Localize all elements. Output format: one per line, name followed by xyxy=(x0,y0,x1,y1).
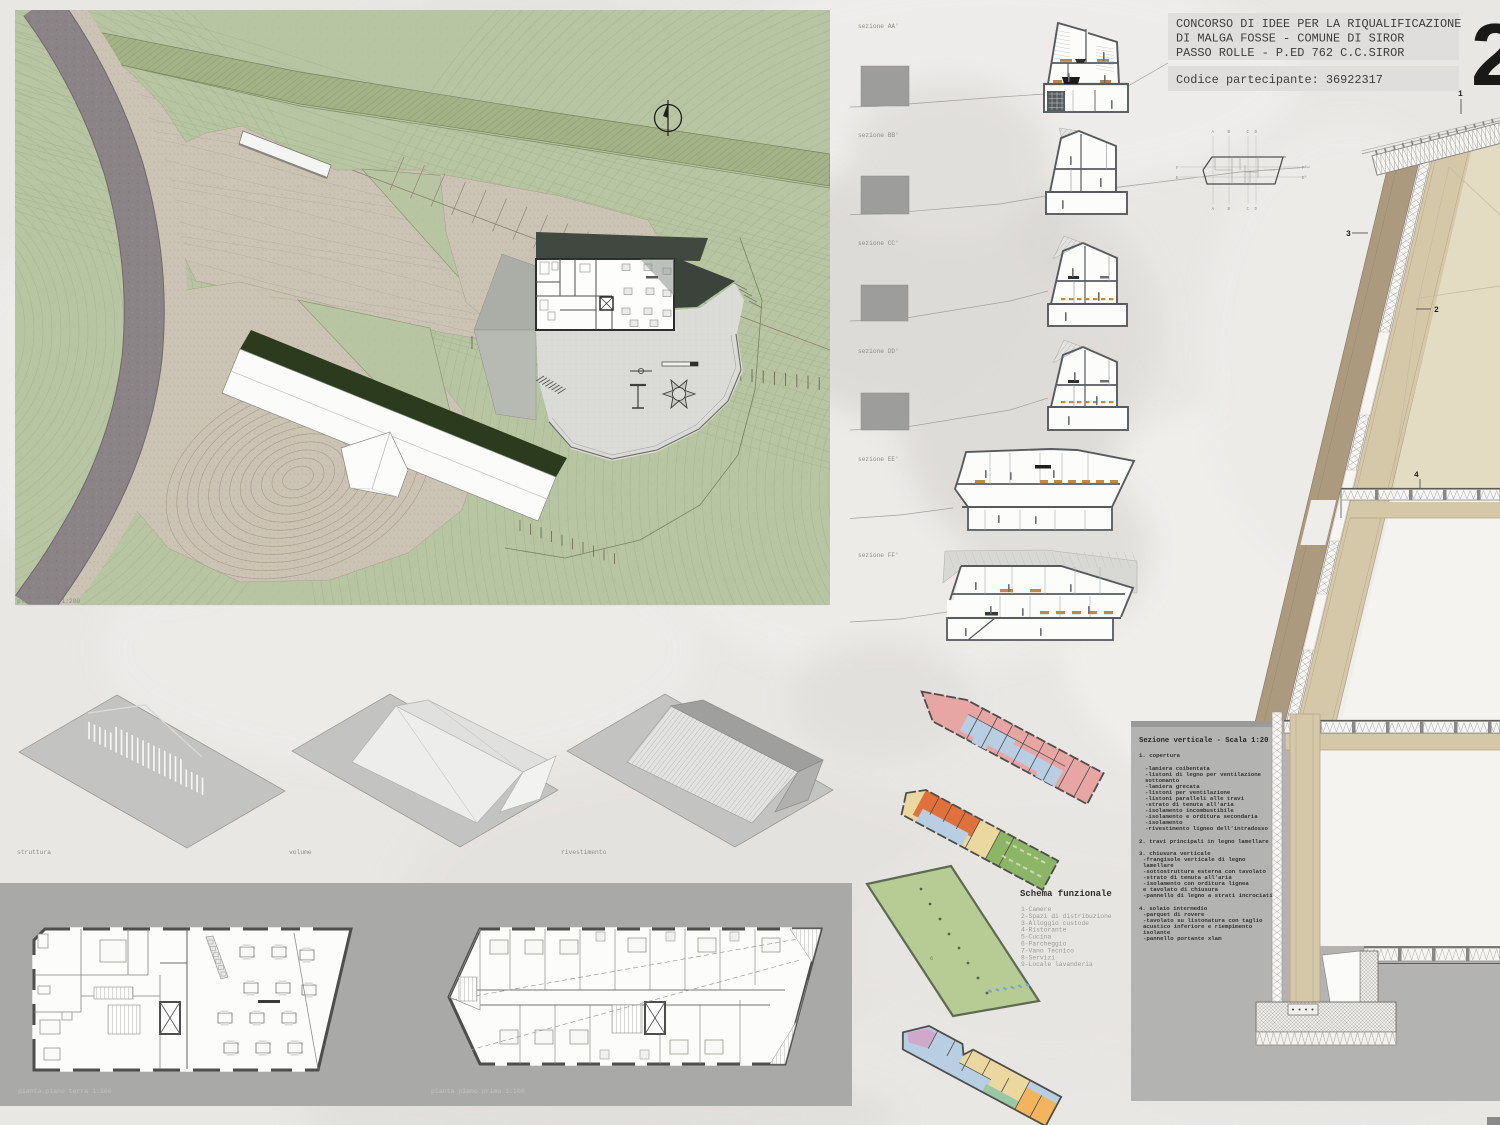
svg-text:DI MALGA FOSSE - COMUNE DI SIR: DI MALGA FOSSE - COMUNE DI SIROR xyxy=(1176,32,1404,46)
svg-text:sezione AA': sezione AA' xyxy=(858,23,899,30)
svg-text:2: 2 xyxy=(1434,306,1439,315)
svg-text:F′: F′ xyxy=(1302,166,1307,171)
svg-text:rivestimento: rivestimento xyxy=(561,849,607,856)
svg-text:2. travi principali in legno l: 2. travi principali in legno lamellare xyxy=(1139,838,1269,845)
svg-text:4: 4 xyxy=(1414,471,1419,480)
svg-text:sezione CC': sezione CC' xyxy=(858,240,899,247)
svg-text:-pannello portante xlam: -pannello portante xlam xyxy=(1143,935,1222,942)
svg-text:2: 2 xyxy=(1471,5,1500,104)
svg-text:1: 1 xyxy=(1458,90,1463,99)
svg-text:sezione BB': sezione BB' xyxy=(858,132,899,139)
svg-text:Schema funzionale: Schema funzionale xyxy=(1020,889,1112,899)
svg-text:sezione DD': sezione DD' xyxy=(858,348,899,355)
svg-text:volume: volume xyxy=(289,849,312,856)
svg-text:Sezione verticale - Scala 1:20: Sezione verticale - Scala 1:20 xyxy=(1139,737,1268,745)
svg-text:-rivestimento ligneo dell'intr: -rivestimento ligneo dell'intradosso xyxy=(1145,825,1268,832)
svg-text:pianta piano terra 1:100: pianta piano terra 1:100 xyxy=(18,1088,112,1095)
svg-text:-pannello di legno a strati in: -pannello di legno a strati incrociati xyxy=(1143,892,1273,899)
svg-text:6: 6 xyxy=(930,956,933,962)
svg-text:1. copertura: 1. copertura xyxy=(1139,752,1181,759)
svg-text:sezione FF': sezione FF' xyxy=(858,552,899,559)
svg-text:struttura: struttura xyxy=(17,849,51,856)
svg-text:planimetria 1:200: planimetria 1:200 xyxy=(17,598,80,605)
svg-text:PASSO ROLLE - P.ED 762 C.C.SIR: PASSO ROLLE - P.ED 762 C.C.SIROR xyxy=(1176,46,1404,60)
svg-text:E′: E′ xyxy=(1302,176,1307,181)
svg-text:pianta piano primo 1:100: pianta piano primo 1:100 xyxy=(431,1088,525,1095)
svg-text:9-Locale lavanderia: 9-Locale lavanderia xyxy=(1021,961,1093,968)
svg-text:sezione EE': sezione EE' xyxy=(858,456,899,463)
svg-text:CONCORSO DI IDEE PER LA RIQUAL: CONCORSO DI IDEE PER LA RIQUALIFICAZIONE xyxy=(1176,17,1461,31)
svg-text:Codice partecipante: 36922317: Codice partecipante: 36922317 xyxy=(1176,73,1383,87)
svg-text:3: 3 xyxy=(1346,230,1351,239)
